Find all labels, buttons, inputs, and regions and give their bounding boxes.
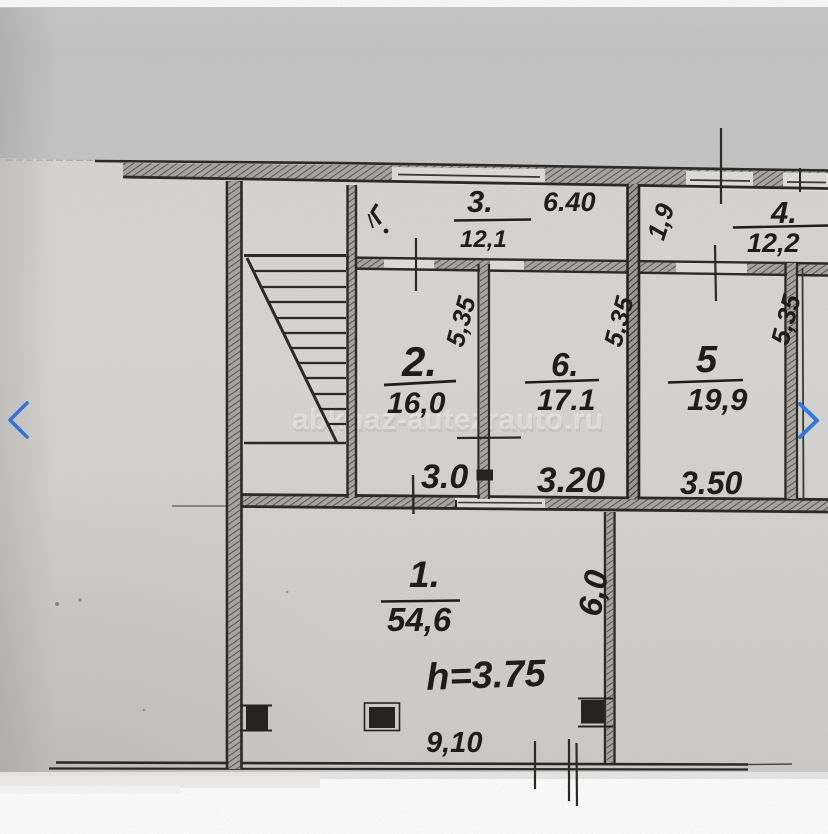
svg-text:5: 5 xyxy=(696,339,718,381)
svg-text:4.: 4. xyxy=(770,195,797,230)
svg-text:1.: 1. xyxy=(409,554,440,595)
svg-text:54,6: 54,6 xyxy=(387,601,452,638)
svg-text:3.50: 3.50 xyxy=(680,465,742,501)
svg-text:6.40: 6.40 xyxy=(543,187,596,217)
svg-text:3.20: 3.20 xyxy=(537,461,606,500)
svg-text:9,10: 9,10 xyxy=(426,727,482,759)
svg-text:2.: 2. xyxy=(401,338,437,385)
svg-text:16,0: 16,0 xyxy=(387,387,446,420)
svg-text:19,9: 19,9 xyxy=(687,382,748,417)
svg-text:6.: 6. xyxy=(551,346,579,383)
svg-text:17.1: 17.1 xyxy=(537,384,595,417)
svg-text:3.0: 3.0 xyxy=(421,458,468,496)
svg-text:12,2: 12,2 xyxy=(747,228,800,258)
svg-text:12,1: 12,1 xyxy=(460,226,507,253)
svg-text:3.: 3. xyxy=(467,184,493,219)
svg-text:h=3.75: h=3.75 xyxy=(426,653,548,699)
